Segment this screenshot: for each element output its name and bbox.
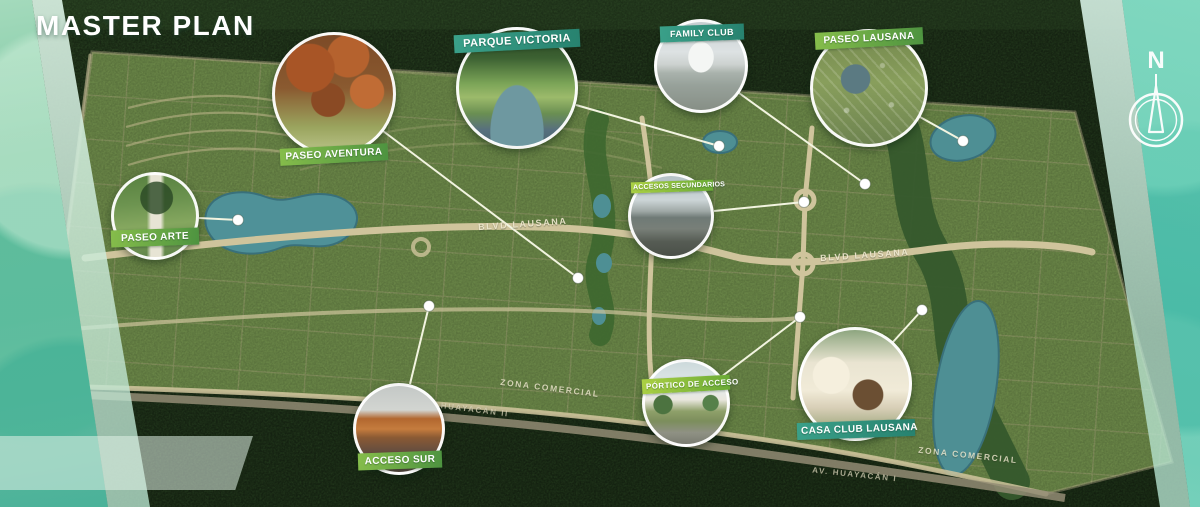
marker-accesos-secundarios [799, 197, 810, 208]
callout-label-family-club: FAMILY CLUB [660, 24, 745, 43]
compass-north-label: N [1147, 47, 1164, 74]
marker-paseo-aventura [573, 273, 584, 284]
marker-parque-victoria [714, 141, 725, 152]
compass-inner-ring [1136, 100, 1177, 141]
title-band [0, 436, 253, 490]
marker-paseo-arte [233, 215, 244, 226]
callout-paseo-arte: PASEO ARTE [111, 172, 199, 260]
marker-acceso-sur [424, 301, 435, 312]
page-title: MASTER PLAN [36, 10, 255, 42]
compass-needle [1149, 86, 1163, 132]
compass-outer-ring [1130, 94, 1182, 146]
callout-label-casa-club-lausana: CASA CLUB LAUSANA [797, 419, 916, 440]
master-plan-image: BLVD LAUSANA BLVD LAUSANA ZONA COMERCIAL… [0, 0, 1200, 507]
marker-casa-club-lausana [917, 305, 928, 316]
compass-rose: N [1112, 40, 1200, 162]
marker-portico-de-acceso [795, 312, 806, 323]
marker-family-club [860, 179, 871, 190]
callout-casa-club-lausana: CASA CLUB LAUSANA [798, 327, 912, 441]
callout-label-paseo-arte: PASEO ARTE [111, 227, 200, 247]
callout-acceso-sur: ACCESO SUR [353, 383, 445, 475]
callout-family-club: FAMILY CLUB [654, 19, 748, 113]
photo-paseo-aventura [272, 32, 396, 156]
callout-accesos-secundarios: ACCESOS SECUNDARIOS [628, 173, 714, 259]
photo-portico-de-acceso [642, 359, 730, 447]
callout-portico-de-acceso: PÓRTICO DE ACCESO [642, 359, 730, 447]
callout-label-acceso-sur: ACCESO SUR [358, 451, 443, 471]
callout-paseo-lausana: PASEO LAUSANA [810, 29, 928, 147]
callout-parque-victoria: PARQUE VICTORIA [456, 27, 578, 149]
callout-paseo-aventura: PASEO AVENTURA [272, 32, 396, 156]
marker-paseo-lausana [958, 136, 969, 147]
